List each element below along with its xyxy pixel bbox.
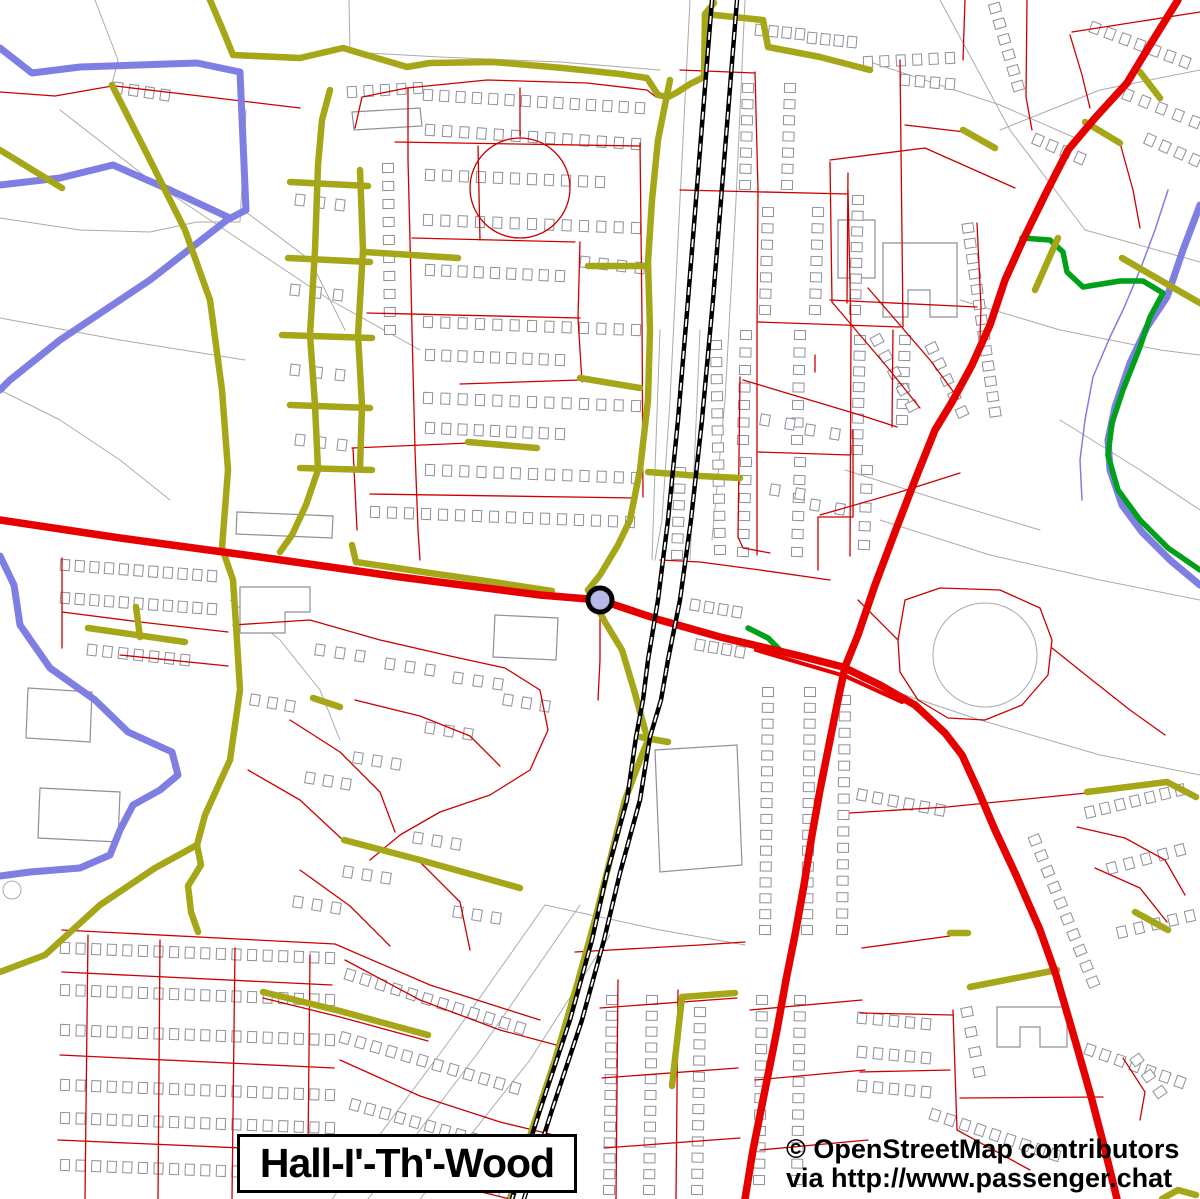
place-label-box: Hall-I'-Th'-Wood [237, 1134, 577, 1193]
streams [1080, 190, 1168, 500]
primary-road-dual-carriageway [756, 650, 902, 702]
residential-court-circle [470, 138, 570, 238]
place-label-text: Hall-I'-Th'-Wood [260, 1140, 554, 1187]
attribution-line-2: via http://www.passenger.chat [786, 1164, 1179, 1193]
map-canvas[interactable] [0, 0, 1200, 1199]
waterways [0, 48, 1200, 876]
green-paths [748, 238, 1200, 652]
osm-map [0, 0, 1200, 1199]
station-marker [588, 588, 612, 612]
attribution-line-1: © OpenStreetMap contributors [786, 1135, 1179, 1164]
map-attribution: © OpenStreetMap contributors via http://… [786, 1135, 1179, 1192]
